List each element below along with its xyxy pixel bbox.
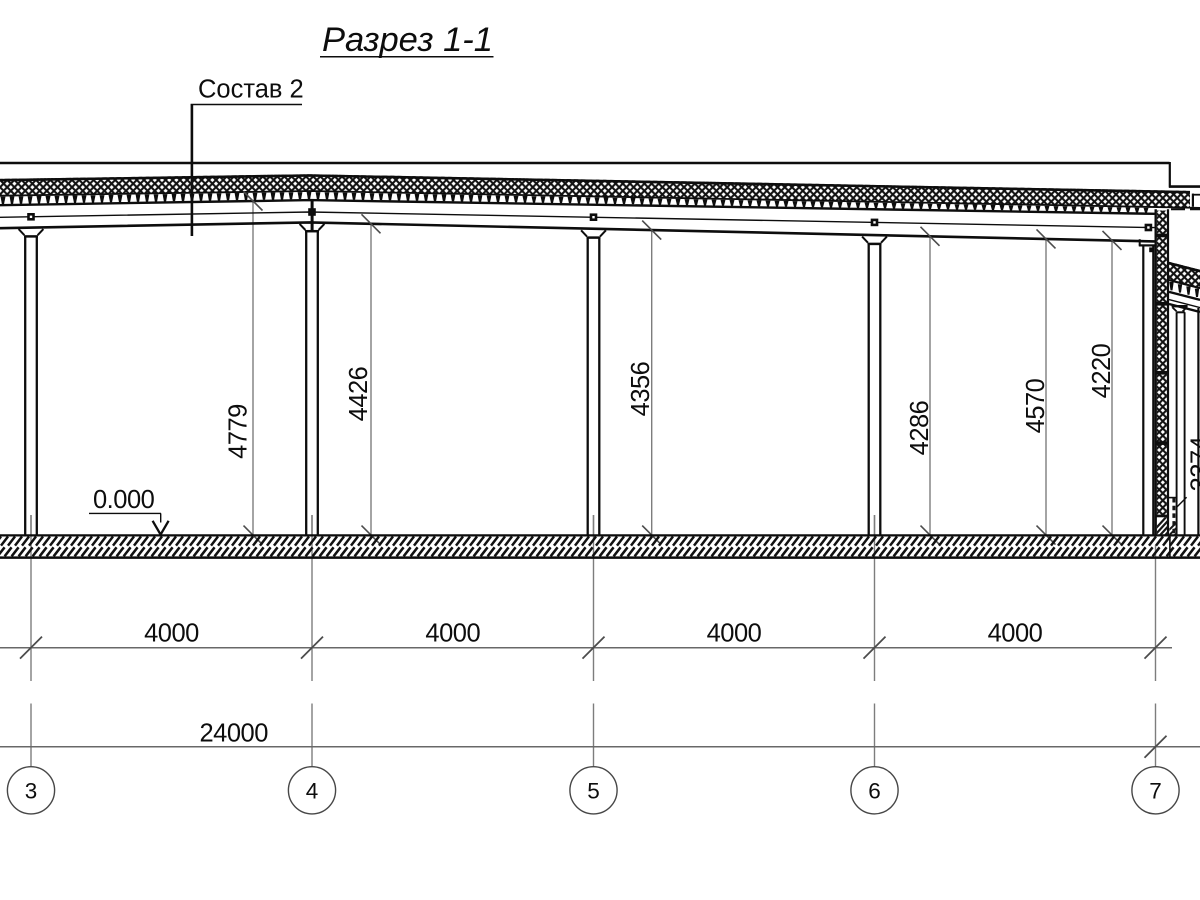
svg-text:5: 5	[587, 778, 600, 803]
svg-text:4: 4	[306, 778, 319, 803]
svg-text:Состав 2: Состав 2	[198, 76, 304, 104]
svg-text:24000: 24000	[199, 719, 268, 747]
svg-text:4000: 4000	[988, 619, 1043, 647]
svg-text:Разрез 1-1: Разрез 1-1	[322, 21, 493, 59]
svg-text:4220: 4220	[1088, 343, 1116, 398]
svg-text:0.000: 0.000	[93, 486, 155, 514]
svg-text:4426: 4426	[345, 366, 373, 421]
svg-text:4286: 4286	[906, 400, 934, 455]
svg-text:4570: 4570	[1022, 378, 1050, 433]
svg-text:4779: 4779	[225, 404, 253, 459]
svg-text:4356: 4356	[627, 361, 655, 416]
svg-text:3: 3	[25, 778, 38, 803]
svg-text:6: 6	[868, 778, 881, 803]
svg-text:4000: 4000	[144, 619, 199, 647]
svg-text:7: 7	[1149, 778, 1162, 803]
svg-text:4000: 4000	[707, 619, 762, 647]
svg-text:4000: 4000	[425, 619, 480, 647]
